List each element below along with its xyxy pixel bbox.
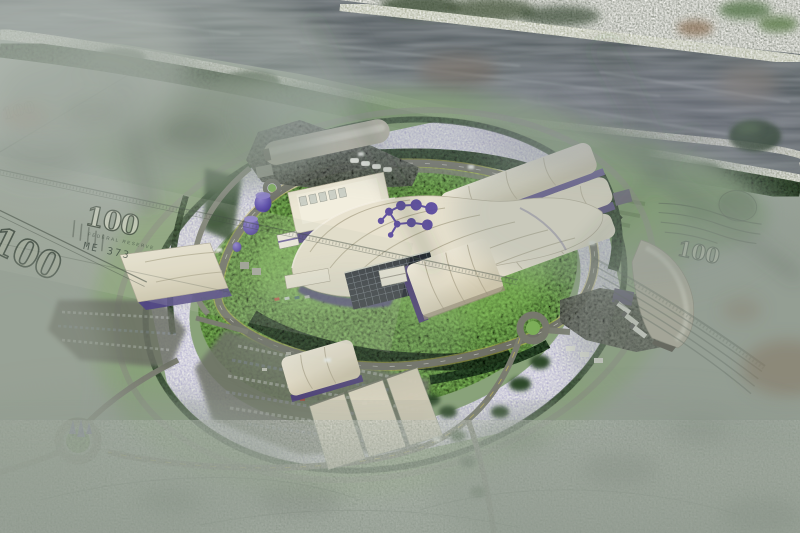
render-canvas: 100 FEDERAL RESERVE ME 373 100 100 100 <box>0 0 800 533</box>
aerial-campus-render: 100 FEDERAL RESERVE ME 373 100 100 100 <box>0 0 800 533</box>
